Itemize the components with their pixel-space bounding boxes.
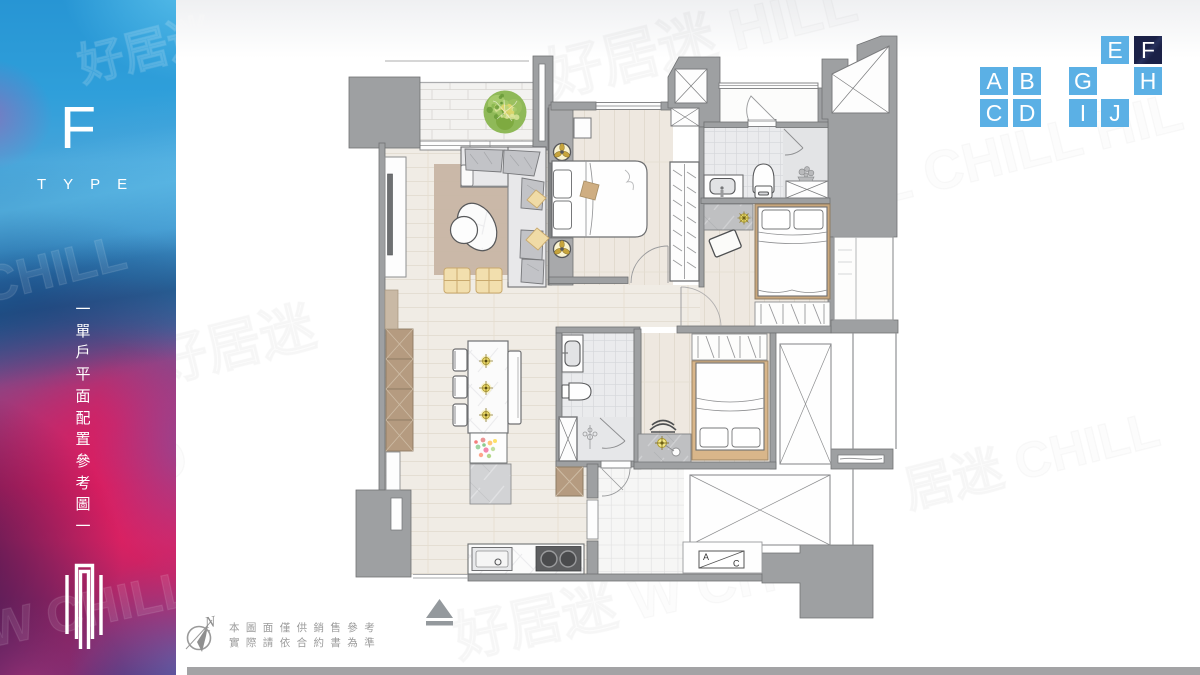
svg-text:A: A [703, 552, 709, 562]
svg-text:C: C [733, 559, 740, 569]
